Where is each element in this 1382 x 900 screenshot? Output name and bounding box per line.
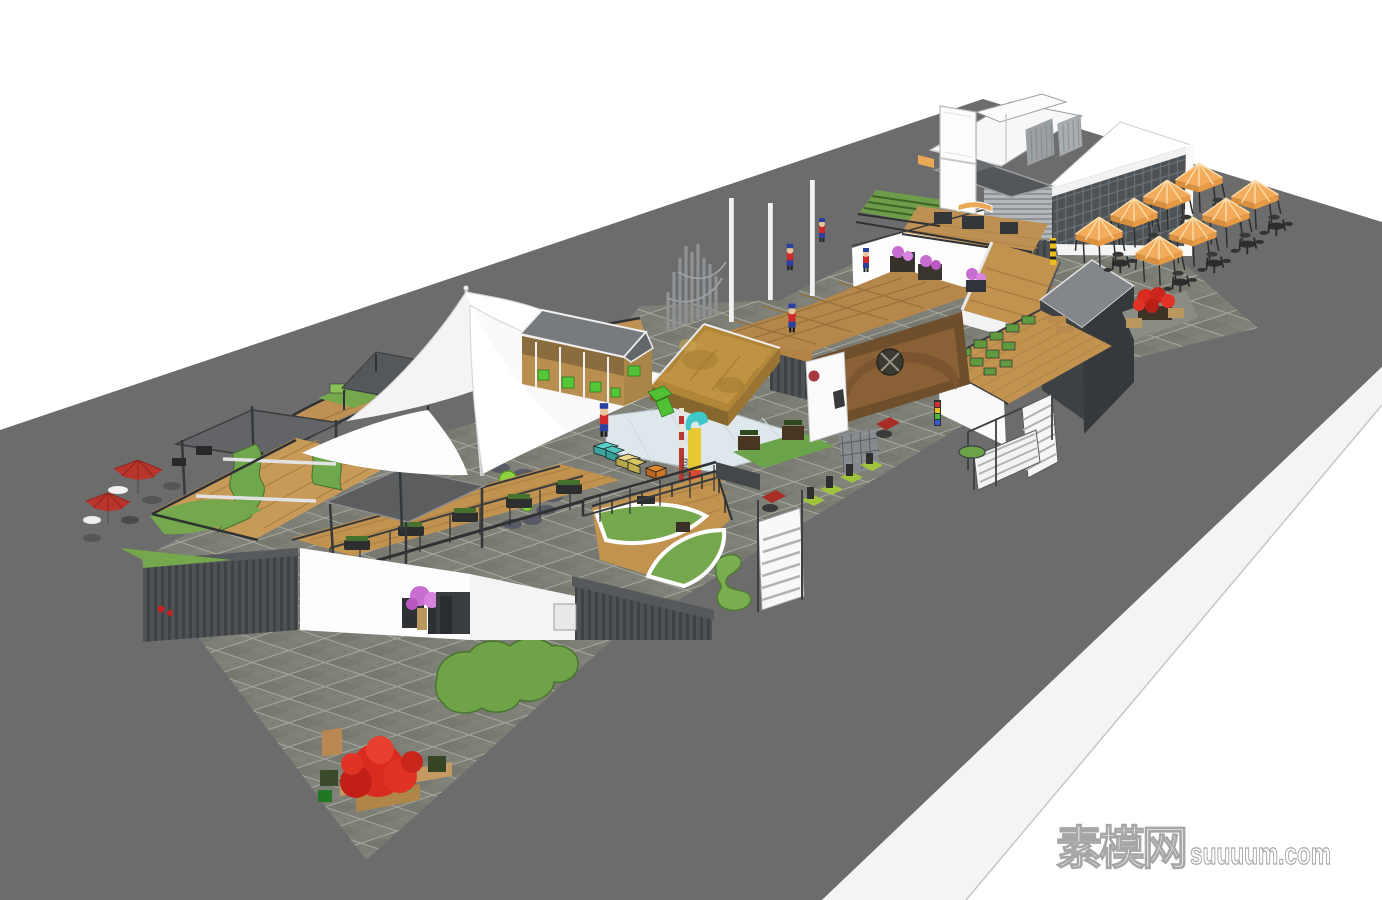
svg-text:素模网: 素模网	[1056, 822, 1188, 874]
svg-text:mall: mall	[679, 458, 690, 476]
svg-text:suuuum.com: suuuum.com	[1190, 836, 1331, 871]
